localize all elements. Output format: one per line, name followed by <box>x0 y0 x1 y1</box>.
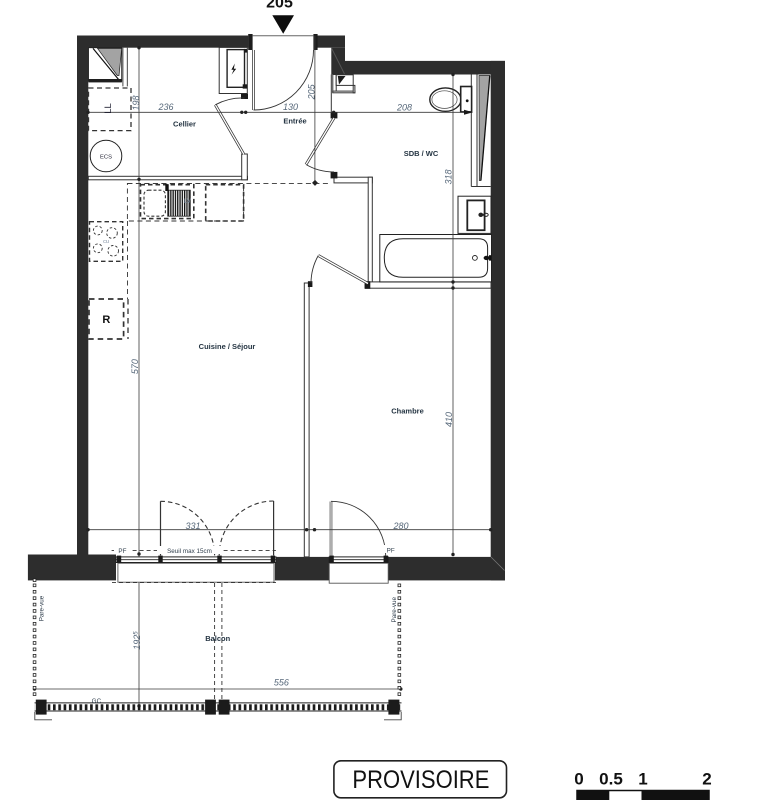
svg-text:318: 318 <box>444 169 454 184</box>
svg-text:cu: cu <box>103 239 109 245</box>
svg-text:205: 205 <box>266 0 293 12</box>
svg-text:331: 331 <box>185 521 200 531</box>
svg-text:SDB / WC: SDB / WC <box>404 149 439 158</box>
svg-text:130: 130 <box>283 102 298 112</box>
svg-text:PF: PF <box>387 548 395 555</box>
svg-text:Balcon: Balcon <box>205 634 230 643</box>
svg-text:LV: LV <box>184 199 191 205</box>
svg-text:410: 410 <box>444 412 454 427</box>
svg-text:205: 205 <box>307 83 317 100</box>
svg-text:2: 2 <box>702 769 711 788</box>
svg-text:208: 208 <box>396 102 412 112</box>
svg-text:Chambre: Chambre <box>391 406 424 415</box>
svg-text:PROVISOIRE: PROVISOIRE <box>352 766 489 794</box>
svg-text:570: 570 <box>130 359 140 374</box>
svg-text:0.5: 0.5 <box>599 769 623 788</box>
svg-text:198: 198 <box>131 95 141 110</box>
svg-text:Pare-vue: Pare-vue <box>39 595 46 621</box>
svg-text:556: 556 <box>274 678 289 688</box>
svg-text:Cellier: Cellier <box>173 119 196 128</box>
svg-text:280: 280 <box>392 521 408 531</box>
svg-text:Entrée: Entrée <box>283 116 306 125</box>
svg-text:Cuisine / Séjour: Cuisine / Séjour <box>199 342 256 351</box>
svg-text:ECS: ECS <box>100 154 112 160</box>
svg-text:GC: GC <box>92 698 102 705</box>
svg-text:LL: LL <box>103 103 114 114</box>
svg-text:236: 236 <box>157 102 173 112</box>
svg-text:PF: PF <box>118 548 126 555</box>
svg-text:R: R <box>102 314 110 326</box>
svg-text:Seuil max 15cm: Seuil max 15cm <box>167 548 212 555</box>
svg-text:0: 0 <box>574 769 583 788</box>
svg-text:Pare-vue: Pare-vue <box>391 596 398 622</box>
svg-text:1925: 1925 <box>132 631 142 650</box>
svg-text:1: 1 <box>638 769 647 788</box>
